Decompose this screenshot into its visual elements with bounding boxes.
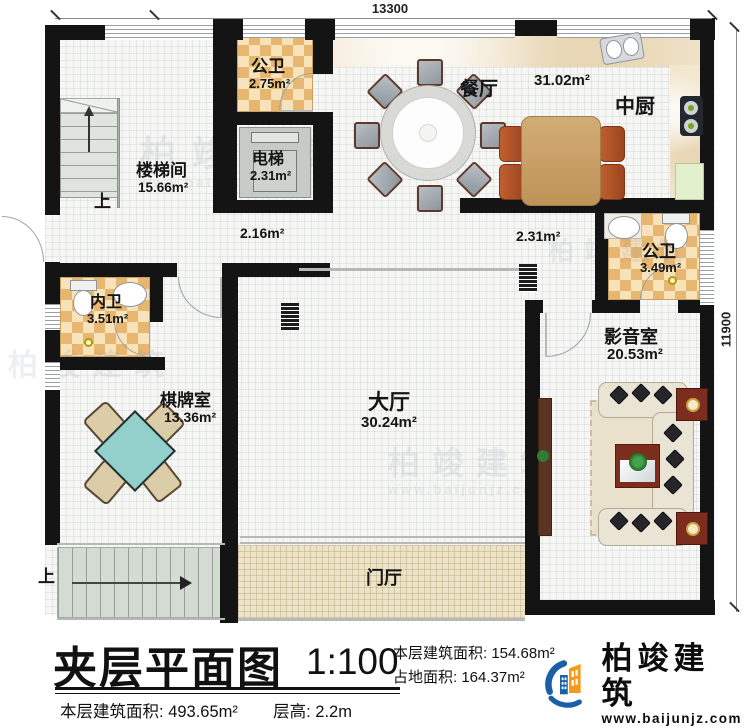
door-arc (2, 216, 44, 262)
door-arc (178, 277, 222, 318)
floor-drain (668, 276, 677, 285)
site-area-value: 164.37m² (461, 669, 524, 686)
stair-rail (117, 98, 120, 208)
site-area-label: 占地面积: (393, 669, 457, 686)
side-table-lamp (686, 398, 700, 412)
floor-plan-page: 柏竣建筑 www.baijunjz.com 柏竣建筑 柏竣建筑 柏竣建筑 www… (0, 0, 750, 728)
room-label-hall: 大厅 (368, 392, 410, 413)
bathroom-sink (608, 216, 640, 239)
dining-chair (417, 59, 443, 86)
room-area-inner-bath: 3.51m² (87, 312, 128, 325)
window (45, 304, 60, 330)
room-label-dining: 餐厅 (460, 80, 498, 99)
room-area-elevator: 2.31m² (250, 169, 291, 182)
annotation-area: 2.16m² (240, 226, 284, 240)
fridge (675, 163, 704, 200)
elevator-door (251, 132, 299, 143)
dimension-tick (729, 602, 740, 613)
wall-segment (45, 25, 105, 40)
wall-segment (592, 300, 640, 313)
dimension-tick (729, 22, 740, 33)
room-label-bath-top: 公卫 (251, 58, 285, 75)
edge-line (57, 618, 225, 620)
door-arc (546, 313, 591, 357)
tv-cabinet (538, 398, 552, 536)
site-area-row: 占地面积: 164.37m² (393, 666, 525, 687)
wall-segment (45, 40, 60, 215)
room-label-media: 影音室 (604, 328, 658, 346)
title-underline (55, 687, 400, 690)
plan-scale: 1:100 (306, 641, 399, 683)
company-logo: 柏竣建筑 www.baijunjz.com (542, 646, 742, 722)
burner-flame (688, 105, 694, 111)
stair-direction-line (88, 116, 90, 152)
room-label-inner-bath: 内卫 (90, 295, 122, 311)
annotation-area: 2.31m² (516, 229, 560, 243)
room-label-bath-right: 公卫 (642, 243, 676, 260)
edge-line (240, 536, 525, 538)
door-leaf (545, 313, 547, 357)
logo-url: www.baijunjz.com (601, 711, 742, 726)
door-leaf (279, 110, 313, 112)
wall-segment (525, 300, 543, 313)
side-table-lamp (686, 522, 700, 536)
edge-line (238, 618, 525, 621)
wall-segment (222, 277, 238, 545)
wall-segment (150, 277, 163, 322)
door-arc (114, 321, 151, 357)
storey-height-label: 层高: (273, 703, 311, 721)
room-area-media: 20.53m² (607, 347, 663, 362)
logo-name: 柏竣建筑 (601, 642, 742, 710)
floor-area-row: 本层建筑面积: 154.68m² (393, 642, 555, 663)
floor-area-label: 本层建筑面积: (393, 645, 487, 662)
dimension-line-top (55, 18, 712, 19)
plant (537, 450, 549, 462)
kitchen-chair (599, 126, 625, 162)
logo-mark-icon (542, 651, 593, 717)
column-post (519, 264, 537, 292)
stair-direction-line (72, 582, 182, 584)
room-label-elevator: 电梯 (252, 152, 284, 168)
dimension-top: 13300 (330, 1, 450, 16)
total-area-label: 本层建筑面积: (60, 703, 164, 721)
dimension-line-right (736, 28, 737, 612)
room-label-foyer: 门厅 (366, 569, 402, 587)
total-area-row: 本层建筑面积: 493.65m² 层高: 2.2m (60, 698, 352, 722)
wall-segment (515, 20, 557, 36)
storey-height-value: 2.2m (315, 703, 352, 721)
kitchen-chair (599, 164, 625, 200)
title-block: 夹层平面图 1:100 本层建筑面积: 154.68m² 占地面积: 164.3… (0, 628, 750, 728)
wall-segment (213, 32, 237, 213)
plant (629, 453, 647, 471)
burner-flame (688, 123, 694, 129)
window (105, 25, 213, 40)
column-post (281, 303, 299, 330)
door-leaf (220, 277, 222, 318)
room-area-hall: 30.24m² (361, 415, 417, 430)
total-area-value: 493.65m² (168, 703, 238, 721)
wall-segment (58, 263, 177, 277)
edge-line (57, 543, 225, 545)
wall-segment (313, 32, 333, 74)
stair-arrow-up (84, 106, 94, 116)
stairs-up-label: 上 (38, 568, 55, 585)
wall-segment (540, 600, 715, 615)
room-label-stairwell: 楼梯间 (136, 162, 187, 179)
window (243, 25, 305, 38)
railing-line (299, 268, 521, 271)
room-area-dining: 31.02m² (534, 73, 590, 88)
room-area-bath-right: 3.49m² (640, 261, 681, 274)
wall-segment (58, 357, 165, 370)
room-area-stairwell: 15.66m² (138, 181, 188, 195)
room-label-kitchen: 中厨 (615, 97, 655, 117)
stairs-up-label: 上 (94, 193, 111, 210)
window (335, 25, 515, 38)
dimension-right: 11900 (719, 309, 734, 351)
dining-chair (417, 185, 443, 212)
room-label-chess: 棋牌室 (160, 392, 211, 409)
stair-arrow-right (180, 576, 192, 590)
wall-segment (700, 305, 714, 615)
kitchen-table (521, 116, 601, 206)
wall-segment (237, 112, 313, 125)
wall-segment (235, 200, 333, 213)
room-area-bath-top: 2.75m² (249, 77, 290, 90)
room-area-chess: 13.36m² (164, 410, 216, 424)
dining-chair (354, 122, 380, 149)
wall-segment (313, 112, 333, 213)
window (45, 362, 60, 390)
title-underline-thin (55, 693, 400, 694)
wall-segment (220, 545, 238, 623)
dining-table-center (419, 124, 437, 142)
window (700, 230, 714, 305)
floor-drain (84, 338, 93, 347)
edge-line (240, 542, 525, 544)
